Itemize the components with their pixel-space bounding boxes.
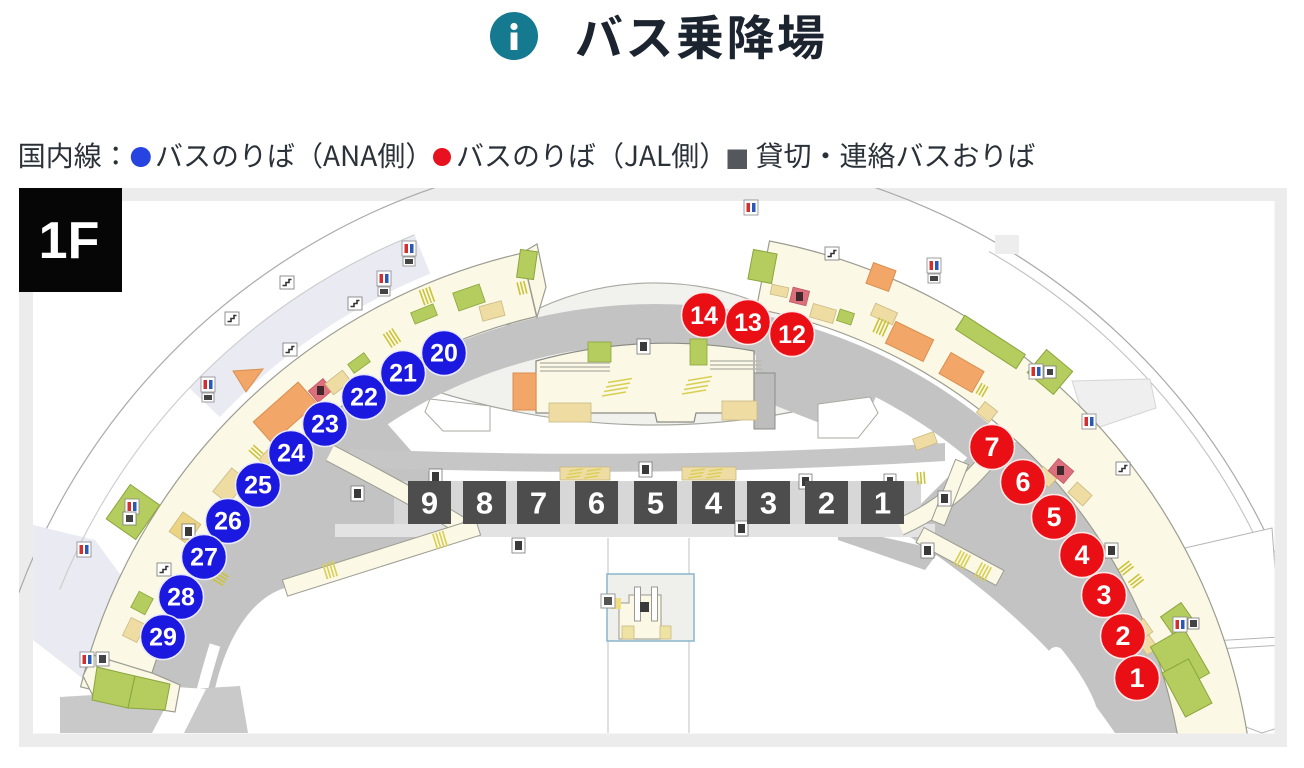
svg-text:7: 7	[984, 432, 999, 462]
svg-text:1: 1	[1129, 663, 1144, 693]
svg-text:2: 2	[818, 486, 835, 521]
svg-text:1: 1	[874, 486, 891, 521]
svg-text:4: 4	[705, 486, 723, 521]
svg-text:5: 5	[1046, 502, 1061, 532]
svg-text:13: 13	[734, 309, 762, 337]
svg-text:23: 23	[311, 411, 339, 439]
svg-text:8: 8	[476, 486, 493, 521]
svg-text:3: 3	[1096, 580, 1111, 610]
svg-text:27: 27	[190, 544, 218, 572]
svg-text:29: 29	[149, 624, 177, 652]
svg-text:28: 28	[167, 584, 195, 612]
svg-text:6: 6	[588, 486, 605, 521]
svg-text:26: 26	[214, 508, 242, 536]
svg-text:2: 2	[1115, 621, 1130, 651]
svg-text:25: 25	[244, 472, 272, 500]
svg-text:7: 7	[530, 486, 547, 521]
svg-text:12: 12	[778, 321, 806, 349]
svg-text:5: 5	[647, 486, 664, 521]
svg-text:9: 9	[421, 486, 438, 521]
svg-text:3: 3	[760, 486, 777, 521]
svg-text:21: 21	[389, 360, 417, 388]
svg-text:4: 4	[1074, 540, 1089, 570]
svg-text:24: 24	[277, 440, 305, 468]
svg-text:1F: 1F	[39, 212, 100, 270]
svg-text:14: 14	[690, 302, 718, 330]
svg-text:6: 6	[1015, 467, 1030, 497]
svg-text:22: 22	[350, 384, 378, 412]
svg-text:20: 20	[430, 340, 458, 368]
